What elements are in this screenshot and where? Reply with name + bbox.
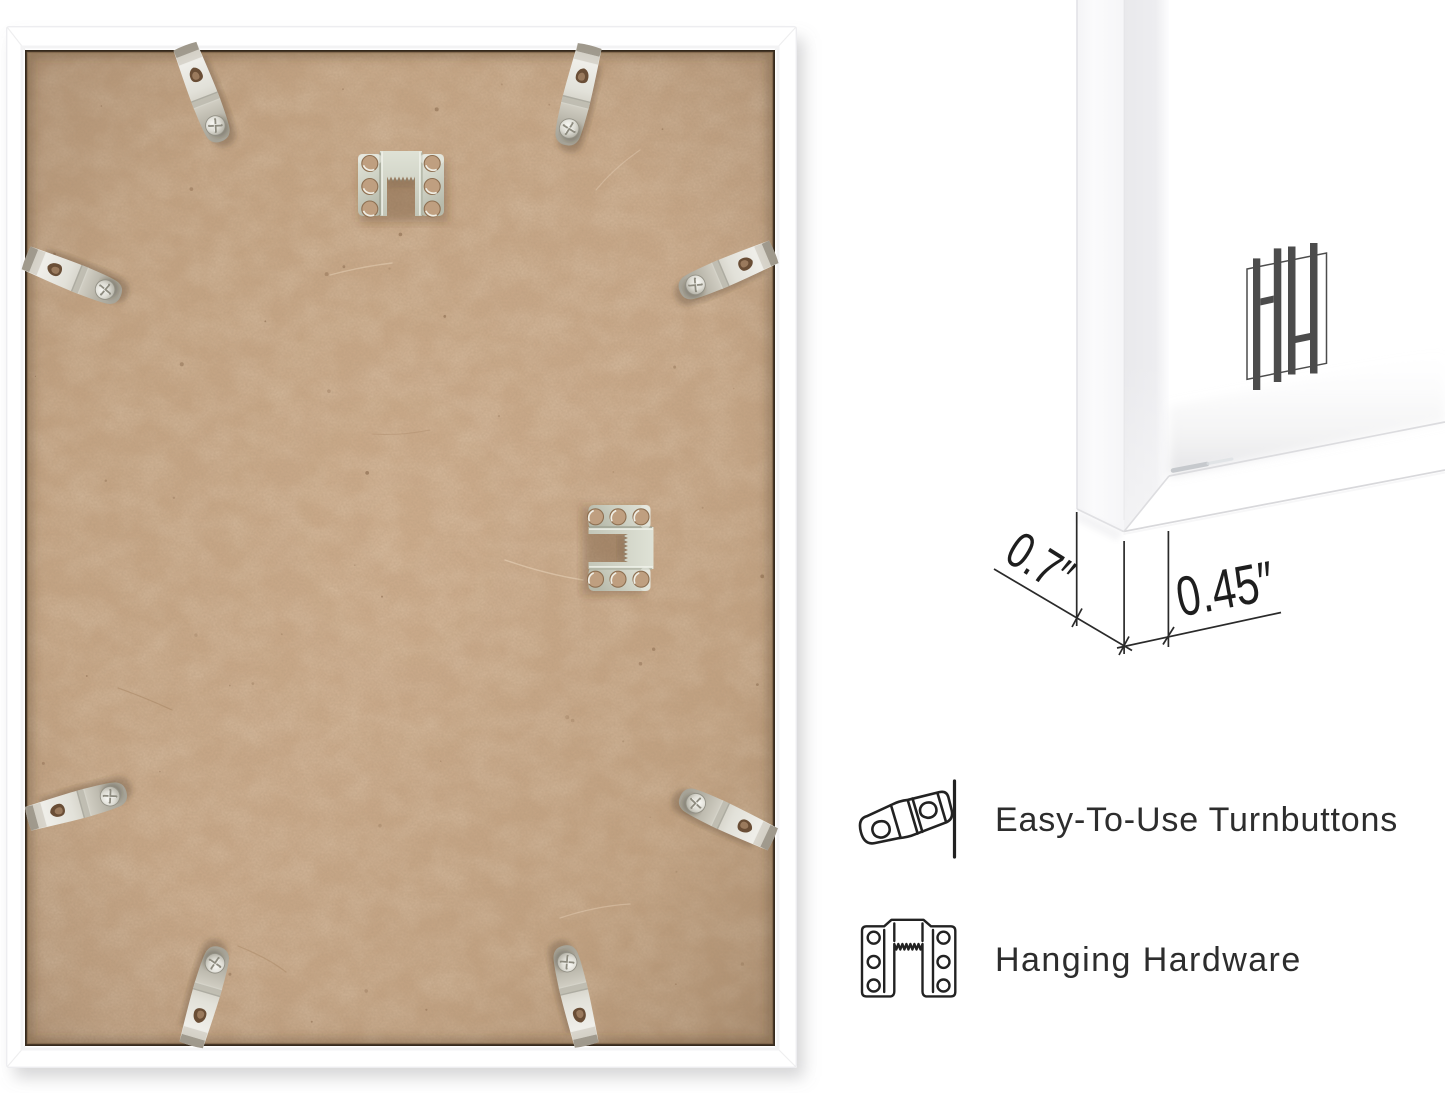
svg-text:Easy-To-Use Turnbuttons: Easy-To-Use Turnbuttons bbox=[995, 801, 1398, 839]
svg-text:Hanging Hardware: Hanging Hardware bbox=[995, 941, 1302, 979]
